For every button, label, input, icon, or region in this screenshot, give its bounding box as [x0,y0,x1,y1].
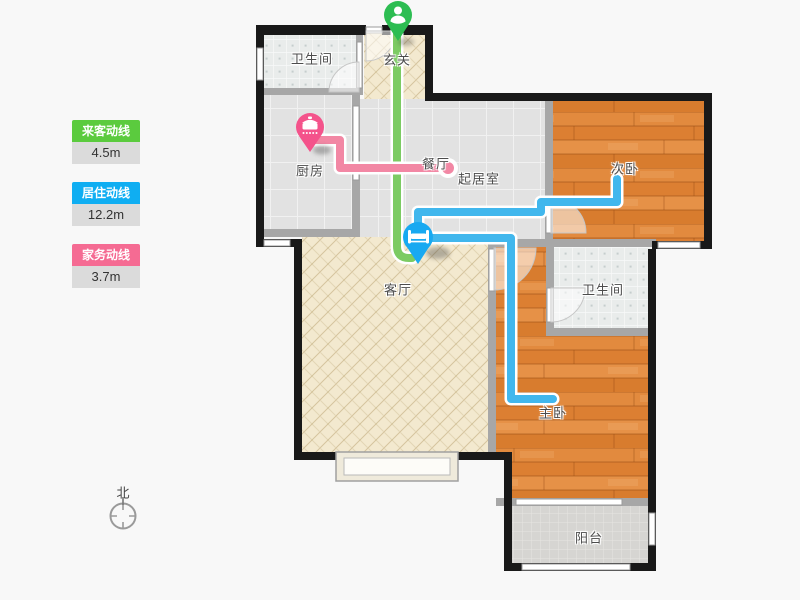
room-label-bathroom-right: 卫生间 [582,280,624,299]
room-label-bedroom-second: 次卧 [611,159,639,178]
window [257,48,263,80]
window [516,499,622,505]
room-label-living-hall: 起居室 [458,169,500,188]
bay-window [336,452,458,481]
compass [111,497,136,529]
legend-guest-line-value: 4.5m [72,142,140,164]
legend-guest-line-title: 来客动线 [72,120,140,142]
window [264,240,290,246]
room-label-balcony: 阳台 [575,528,603,547]
legend-guest-line: 来客动线 4.5m [72,120,140,164]
floorplan-canvas [0,0,800,600]
legend-chore-line-value: 3.7m [72,266,140,288]
window [658,242,700,248]
room-floors [264,33,704,565]
legend-living-line-value: 12.2m [72,204,140,226]
window [649,513,655,545]
legend-living-line: 居住动线 12.2m [72,182,140,226]
legend-chore-line-title: 家务动线 [72,244,140,266]
living-room-floor [302,237,492,455]
floorplan-page: 卫生间 玄关 厨房 餐厅 起居室 次卧 客厅 卫生间 主卧 阳台 来客动线 4.… [0,0,800,600]
compass-north-label: 北 [116,483,129,502]
legend-living-line-title: 居住动线 [72,182,140,204]
room-label-bedroom-master: 主卧 [539,403,567,422]
room-label-entry: 玄关 [383,50,411,69]
room-label-living-room: 客厅 [384,280,412,299]
window [522,564,630,570]
room-label-dining: 餐厅 [422,154,450,173]
legend-chore-line: 家务动线 3.7m [72,244,140,288]
room-label-kitchen: 厨房 [296,161,324,180]
room-label-bathroom-top: 卫生间 [291,49,333,68]
